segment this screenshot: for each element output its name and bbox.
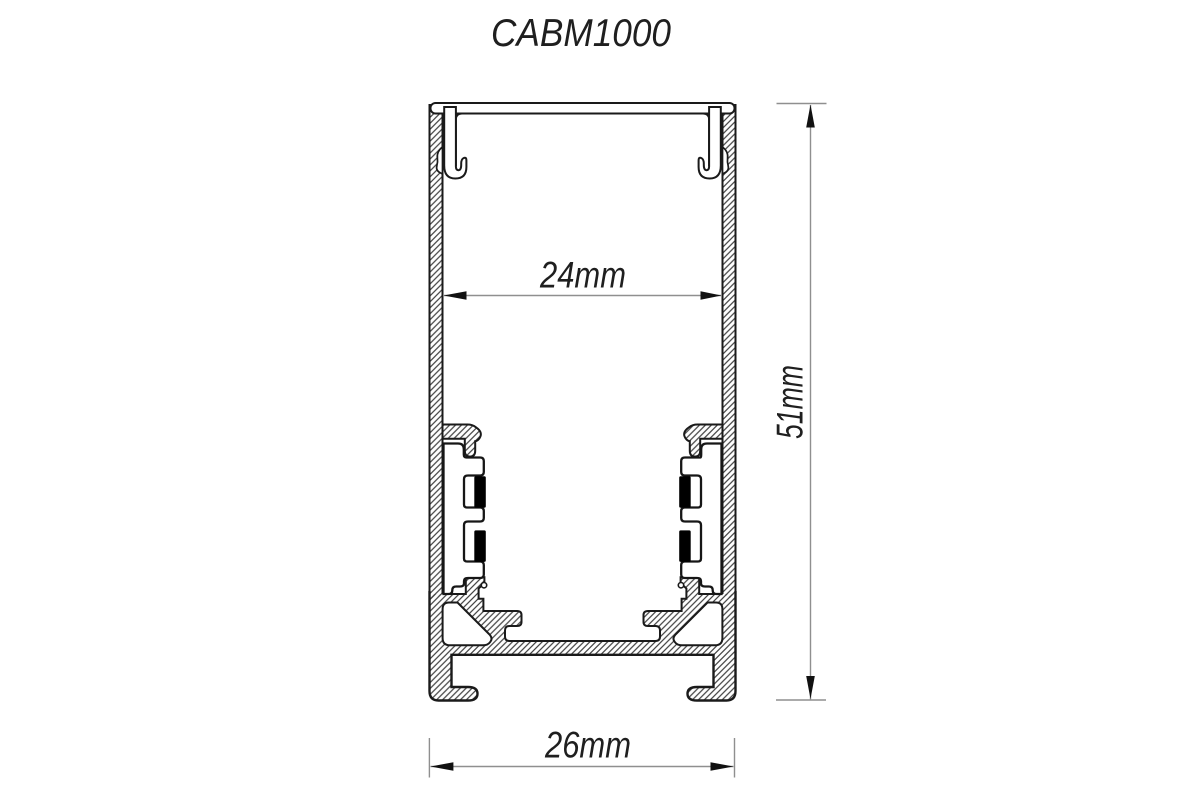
svg-text:51mm: 51mm <box>770 365 811 439</box>
svg-text:26mm: 26mm <box>544 725 631 766</box>
svg-text:24mm: 24mm <box>539 255 626 296</box>
svg-text:CABM1000: CABM1000 <box>491 12 671 55</box>
